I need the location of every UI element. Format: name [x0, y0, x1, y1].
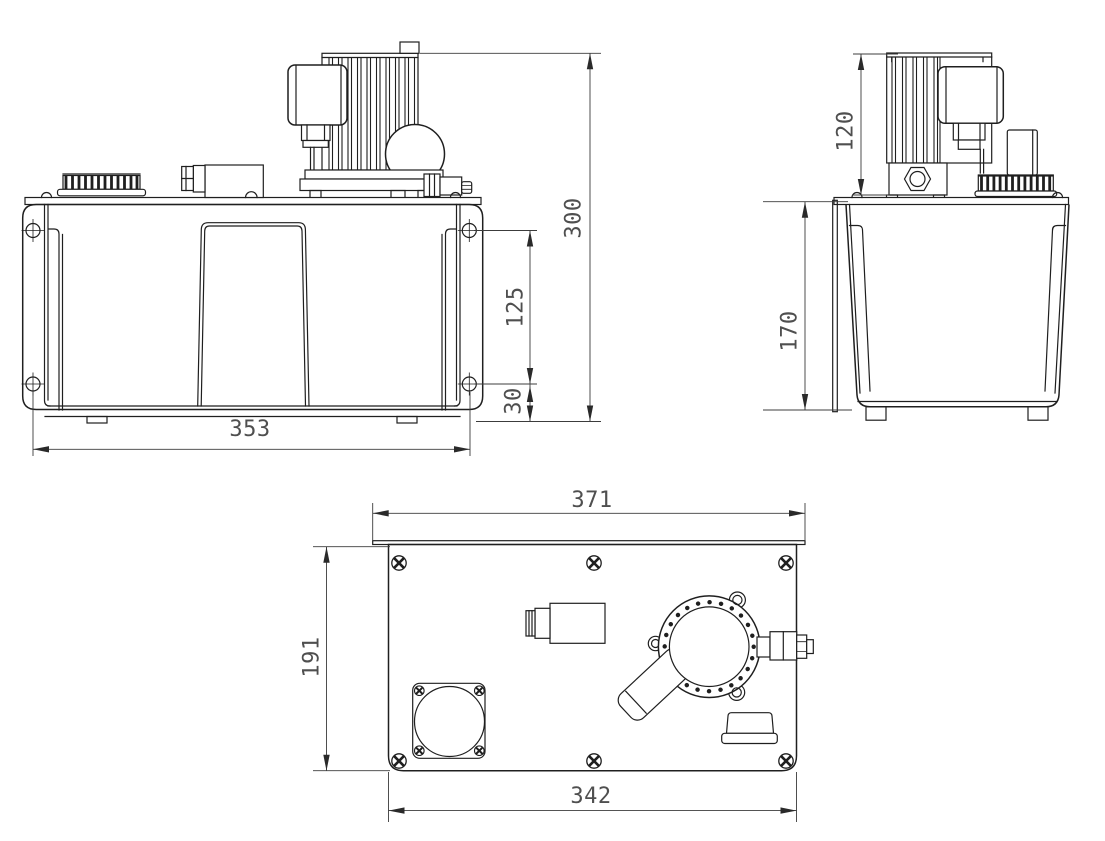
lid-screw — [587, 754, 601, 768]
lid-screw — [392, 754, 406, 768]
filler-cap-side — [975, 175, 1057, 197]
lid-screw — [779, 754, 793, 768]
tank-mounting-plate — [23, 205, 483, 410]
lid-screw — [779, 556, 793, 570]
dim-front-overall-height: 300 — [562, 197, 587, 238]
pump-outlet-fitting — [424, 174, 472, 197]
filler-cap-top — [614, 592, 813, 724]
side-view: 120 170 — [763, 53, 1069, 420]
tank-baffle — [198, 223, 309, 406]
side-dimensions: 120 170 — [763, 54, 898, 410]
side-mounting-plate-edge — [833, 200, 838, 411]
level-switch-box — [182, 165, 264, 198]
reservoir-side — [833, 193, 1069, 421]
lid-screw — [392, 556, 406, 570]
filler-cap-front — [58, 174, 146, 196]
dim-front-hole-to-base: 30 — [502, 387, 527, 415]
tank-body-side — [846, 205, 1069, 407]
mount-hole-marker — [22, 219, 45, 242]
motor-junction-box-side — [938, 67, 1003, 124]
level-switch-box-top — [526, 603, 605, 643]
motor-mount-flange-top — [413, 683, 485, 758]
cap-side-fitting — [757, 632, 813, 660]
motor-assembly — [288, 42, 472, 199]
dim-side-tank-depth: 170 — [778, 310, 803, 351]
dim-top-body-width: 342 — [570, 784, 611, 809]
drain-plug-top — [722, 713, 778, 744]
top-view: 371 191 342 — [300, 488, 814, 822]
dim-front-hole-spacing-vertical: 125 — [504, 286, 529, 327]
motor-top-lug — [400, 42, 419, 53]
motor-junction-box — [288, 65, 347, 125]
dim-side-motor-height: 120 — [834, 110, 859, 151]
pump-unit-three-view-drawing: 300 125 30 353 — [0, 0, 1105, 841]
dim-front-hole-spacing-horizontal: 353 — [229, 417, 270, 442]
lid-screw — [587, 556, 601, 570]
reservoir-front — [22, 165, 483, 423]
front-view: 300 125 30 353 — [22, 42, 602, 456]
engineering-drawing-canvas: 300 125 30 353 — [0, 0, 1105, 841]
dim-top-plate-depth: 191 — [300, 636, 325, 677]
dim-top-flange-width: 371 — [571, 488, 612, 513]
